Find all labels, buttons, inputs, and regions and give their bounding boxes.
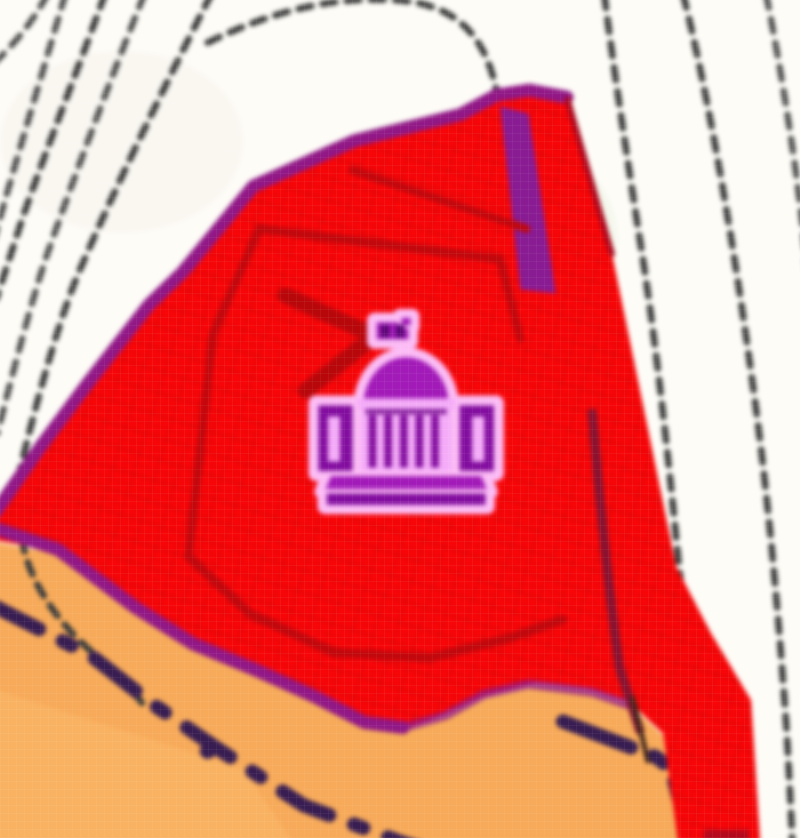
map-canvas	[0, 0, 800, 838]
map-viewport[interactable]	[0, 0, 800, 838]
ground-tint	[0, 51, 243, 233]
admin-boundary-dot	[200, 743, 216, 759]
strip-bottom-shadow	[704, 830, 750, 838]
